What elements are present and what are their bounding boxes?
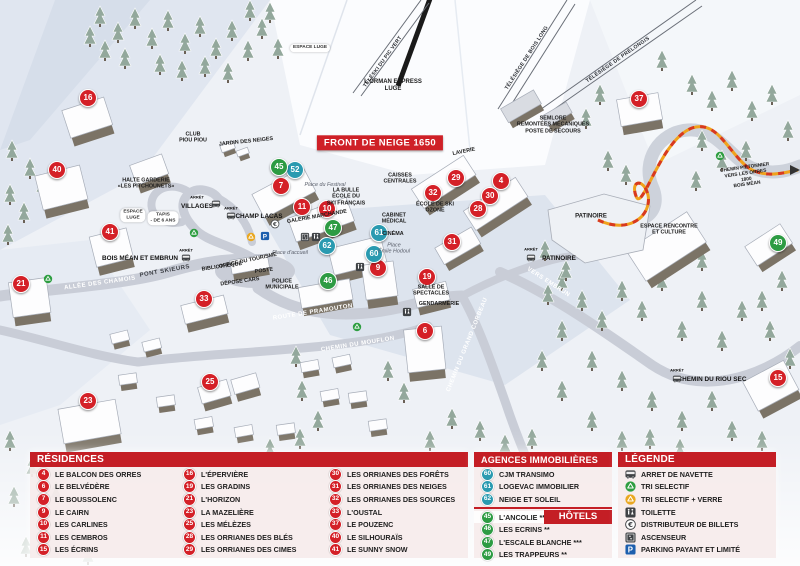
legend-item-label: LES ORRIANES DES BLÉS (201, 533, 293, 542)
legend-item-61: 61LOGEVAC IMMOBILIER (474, 481, 612, 494)
legend-item-11: 11LES CEMBROS (30, 531, 176, 544)
map-marker-41: 41 (101, 223, 119, 241)
map-label: CHEMIN DU MOUFLON (321, 336, 396, 355)
map-key-item: ASCENSEUR (618, 531, 776, 544)
map-label: DÉPOSE CARS (220, 276, 260, 288)
map-label: ESPACE RENCONTRE ET CULTURE (640, 224, 697, 237)
legend-number-badge: 47 (481, 536, 494, 549)
legend-item-label: LE BELVÉDÈRE (55, 482, 110, 491)
legend-item-40: 40LE SILHOURAÏS (322, 531, 468, 544)
map-key-label: PARKING PAYANT ET LIMITÉ (641, 545, 740, 554)
map-label: Place Émile Hodoul (378, 243, 410, 256)
map-key-label: ARRET DE NAVETTE (641, 470, 713, 479)
legend-item-62: 62NEIGE ET SOLEIL (474, 493, 612, 506)
map-key-title: LÉGENDE (625, 454, 675, 465)
map-label: CABINET MÉDICAL (382, 213, 407, 226)
map-label: POSTE (254, 267, 273, 276)
recycle-green-icon (190, 229, 199, 238)
legend-number-badge: 60 (481, 468, 494, 481)
hotels-legend-header: HÔTELS (544, 510, 612, 524)
legend-item-25: 25LES MÉLÈZES (176, 518, 322, 531)
map-key-panel: LÉGENDE ARRET DE NAVETTETRI SELECTIFTRI … (618, 452, 776, 558)
map-marker-33: 33 (195, 290, 213, 308)
legend-item-4: 4LE BALCON DES ORRES (30, 468, 176, 481)
legend-item-label: LES CARLINES (55, 520, 108, 529)
map-label: CINÉMA (382, 231, 403, 237)
map-label: BOIS MÉAN ET EMBRUN (102, 255, 178, 263)
map-marker-23: 23 (79, 392, 97, 410)
legend-item-label: LES GRADINS (201, 482, 250, 491)
legend-item-label: CJM TRANSIMO (499, 470, 555, 479)
map-key-header: LÉGENDE (618, 452, 776, 467)
map-label: GENDARMERIE (419, 301, 459, 307)
map-label: CAISSES CENTRALES (384, 173, 417, 186)
legend-number-badge: 11 (37, 531, 50, 544)
bus-icon (527, 254, 536, 263)
legend-number-badge: 29 (183, 543, 196, 556)
map-key-label: TRI SELECTIF + VERRE (641, 495, 722, 504)
legend-item-label: L'ANCOLIE ** (499, 513, 545, 522)
legend-number-badge: 19 (183, 480, 196, 493)
legend-number-badge: 45 (481, 511, 494, 524)
map-label: CHEMIN PIÉTONNIER VERS LES ORRES 1800 BO… (718, 162, 775, 192)
map-marker-15: 15 (769, 369, 787, 387)
map-label: SALLE DE SPECTACLES (413, 285, 449, 298)
map-label: L'ORMAN EXPRESS LUGE (364, 79, 422, 93)
legend-number-badge: 4 (37, 468, 50, 481)
legend-item-32: 32LES ORRIANES DES SOURCES (322, 493, 468, 506)
legend-item-label: LES ÉCRINS (55, 545, 98, 554)
recycle-green-icon (716, 152, 725, 161)
legend-number-badge: 62 (481, 493, 494, 506)
svg-text:€: € (272, 222, 277, 228)
map-label: TÉLÉSIÈGE DE BOIS LONG (504, 25, 550, 91)
hotels-divider (474, 507, 612, 509)
map-marker-46: 46 (319, 272, 337, 290)
legend-number-badge: 9 (37, 506, 50, 519)
map-marker-11: 11 (293, 198, 311, 216)
legend-number-badge: 7 (37, 493, 50, 506)
map-label: ESPACE LUGE (290, 44, 330, 52)
legend-number-badge: 37 (329, 518, 342, 531)
legend-number-badge: 6 (37, 480, 50, 493)
residences-title: RÉSIDENCES (37, 454, 104, 465)
legend-item-16: 16L'ÉPERVIÈRE (176, 468, 322, 481)
recycle-green-icon (44, 275, 53, 284)
legend-item-label: LE BALCON DES ORRES (55, 470, 141, 479)
map-marker-29: 29 (447, 169, 465, 187)
parking-icon: P (625, 544, 636, 555)
legend-item-28: 28LES ORRIANES DES BLÉS (176, 531, 322, 544)
elevator-icon (625, 532, 636, 543)
map-key-item: PPARKING PAYANT ET LIMITÉ (618, 544, 776, 557)
map-key-list: ARRET DE NAVETTETRI SELECTIFTRI SELECTIF… (618, 467, 776, 556)
recycle-green-icon (625, 481, 636, 492)
resort-map: 1640412133232571110919629432302831371552… (0, 0, 800, 566)
legend-item-label: LE SUNNY SNOW (347, 545, 408, 554)
recycle-yellow-icon (625, 494, 636, 505)
legend-item-label: LE SILHOURAÏS (347, 533, 403, 542)
legend-item-label: LES ORRIANES DES FORÊTS (347, 470, 449, 479)
map-marker-21: 21 (12, 275, 30, 293)
map-marker-16: 16 (79, 89, 97, 107)
map-key-label: TRI SELECTIF (641, 482, 689, 491)
legend-item-label: LES ECRINS ** (499, 525, 550, 534)
recycle-yellow-icon (247, 233, 256, 242)
legend-item-label: LES TRAPPEURS ** (499, 550, 567, 559)
legend-item-label: L'HORIZON (201, 495, 240, 504)
legend-number-badge: 28 (183, 531, 196, 544)
map-label: JARDIN DES NEIGES (219, 136, 274, 148)
legend-item-label: L'ÉPERVIÈRE (201, 470, 248, 479)
legend-item-47: 47L'ESCALE BLANCHE *** (474, 536, 612, 549)
legend-item-10: 10LES CARLINES (30, 518, 176, 531)
map-key-label: DISTRIBUTEUR DE BILLETS (641, 520, 738, 529)
recycle-green-icon (353, 323, 362, 332)
map-marker-37: 37 (630, 90, 648, 108)
map-label: CHEMIN DU RIOU SEC (678, 376, 747, 384)
map-marker-28: 28 (469, 200, 487, 218)
legend-item-23: 23LA MAZELIÈRE (176, 506, 322, 519)
bus-icon (212, 200, 221, 209)
svg-text:P: P (263, 233, 268, 240)
legend-item-37: 37LE POUZENC (322, 518, 468, 531)
euro-icon: € (625, 519, 636, 530)
map-label: ESPACE LUGE (120, 208, 145, 222)
bus-icon (227, 212, 236, 221)
legend-number-badge: 31 (329, 480, 342, 493)
bus-icon (673, 375, 682, 384)
legend-item-6: 6LE BELVÉDÈRE (30, 481, 176, 494)
legend-number-badge: 23 (183, 506, 196, 519)
legend-item-label: LE BOUSSOLENC (55, 495, 117, 504)
agencies-legend-header: AGENCES IMMOBILIÈRES (474, 452, 612, 467)
map-label: ALLÉE DES CHAMOIS (64, 275, 136, 292)
legend-item-label: NEIGE ET SOLEIL (499, 495, 561, 504)
map-marker-62: 62 (318, 237, 336, 255)
legend-number-badge: 41 (329, 543, 342, 556)
legend-number-badge: 40 (329, 531, 342, 544)
map-label: Place d'accueil (272, 250, 308, 256)
map-key-item: ARRET DE NAVETTE (618, 468, 776, 481)
map-key-item: TRI SELECTIF (618, 481, 776, 494)
legend-item-31: 31LES ORRIANES DES NEIGES (322, 481, 468, 494)
map-label: PONT SKIEURS (139, 264, 190, 280)
map-marker-40: 40 (48, 161, 66, 179)
map-label: PATINOIRE (575, 213, 607, 220)
toilet-icon (356, 263, 365, 272)
legend-item-19: 19LES GRADINS (176, 481, 322, 494)
residences-list: 4LE BALCON DES ORRES6LE BELVÉDÈRE7LE BOU… (30, 467, 468, 556)
toilet-icon (625, 507, 636, 518)
map-label: ARRÊT (190, 196, 204, 201)
map-marker-19: 19 (418, 268, 436, 286)
legend-item-29: 29LES ORRIANES DES CIMES (176, 544, 322, 557)
map-label: ARRÊT (670, 369, 684, 374)
residences-legend-header: RÉSIDENCES (30, 452, 468, 467)
legend-number-badge: 49 (481, 548, 494, 561)
map-key-label: ASCENSEUR (641, 533, 686, 542)
legend-item-label: L'ESCALE BLANCHE *** (499, 538, 582, 547)
legend-item-60: 60CJM TRANSIMO (474, 468, 612, 481)
map-key-item: TOILETTE (618, 506, 776, 519)
map-label: HALTE GARDERIE «LES PITCHOUNETS» (118, 178, 175, 191)
map-label: ROUTE DE PRAMOUTON (272, 303, 353, 323)
svg-text:P: P (628, 546, 633, 555)
legend-item-label: LOGEVAC IMMOBILIER (499, 482, 579, 491)
legend-item-21: 21L'HORIZON (176, 493, 322, 506)
map-label: LAVERIE (452, 146, 476, 157)
map-marker-4: 4 (492, 172, 510, 190)
map-label: PATINOIRE (542, 255, 576, 263)
map-label: VERS EMBRUN (525, 266, 571, 299)
legend-item-label: LES CEMBROS (55, 533, 108, 542)
legend-number-badge: 30 (329, 468, 342, 481)
map-label: SEMLORE REMONTÉES MÉCANIQUES POSTE DE SE… (517, 115, 589, 134)
svg-text:€: € (627, 521, 633, 529)
map-label: VILLAGES (181, 203, 213, 211)
front-de-neige-banner: FRONT DE NEIGE 1650 (317, 135, 443, 150)
map-marker-25: 25 (201, 373, 219, 391)
legend-item-label: LES ORRIANES DES NEIGES (347, 482, 447, 491)
euro-icon: € (271, 220, 280, 229)
map-marker-49: 49 (769, 234, 787, 252)
map-marker-31: 31 (443, 233, 461, 251)
legend-item-label: LE POUZENC (347, 520, 393, 529)
legend-item-49: 49LES TRAPPEURS ** (474, 549, 612, 562)
map-label: LA BULLE ÉCOLE DU SKI FRANÇAIS (327, 187, 365, 206)
legend-number-badge: 16 (183, 468, 196, 481)
elevator-icon (301, 233, 310, 242)
agencies-title: AGENCES IMMOBILIÈRES (481, 455, 598, 465)
legend-number-badge: 21 (183, 493, 196, 506)
agencies-list: 60CJM TRANSIMO61LOGEVAC IMMOBILIER62NEIG… (474, 467, 612, 506)
legend-item-label: LES ORRIANES DES CIMES (201, 545, 296, 554)
legend-item-9: 9LE CAIRN (30, 506, 176, 519)
legend-number-badge: 46 (481, 523, 494, 536)
legend-item-label: LA MAZELIÈRE (201, 508, 254, 517)
legend-item-label: L'OUSTAL (347, 508, 382, 517)
map-label: ÉCOLE DE SKI OZONE (416, 202, 454, 215)
map-key-label: TOILETTE (641, 508, 676, 517)
map-marker-6: 6 (416, 322, 434, 340)
bus-icon (625, 469, 636, 480)
legend-number-badge: 61 (481, 480, 494, 493)
hotels-list: HÔTELS 45L'ANCOLIE **46LES ECRINS **47L'… (474, 510, 612, 561)
toilet-icon (312, 233, 321, 242)
map-marker-52: 52 (286, 161, 304, 179)
map-key-item: TRI SELECTIF + VERRE (618, 493, 776, 506)
bus-icon (182, 254, 191, 263)
legend-number-badge: 25 (183, 518, 196, 531)
legend-number-badge: 32 (329, 493, 342, 506)
map-marker-47: 47 (324, 219, 342, 237)
map-label: TÉLÉSIÈGE DE PRÉLONGIS (585, 36, 651, 85)
legend-item-label: LES ORRIANES DES SOURCES (347, 495, 455, 504)
legend-number-badge: 10 (37, 518, 50, 531)
agencies-legend-panel: AGENCES IMMOBILIÈRES 60CJM TRANSIMO61LOG… (474, 452, 612, 558)
parking-icon: P (261, 232, 270, 241)
legend-item-label: LES MÉLÈZES (201, 520, 251, 529)
legend-item-7: 7LE BOUSSOLENC (30, 493, 176, 506)
residences-legend-panel: RÉSIDENCES 4LE BALCON DES ORRES6LE BELVÉ… (30, 452, 468, 558)
toilet-icon (403, 308, 412, 317)
map-marker-7: 7 (272, 177, 290, 195)
legend-item-46: 46LES ECRINS ** (474, 523, 612, 536)
map-marker-45: 45 (270, 158, 288, 176)
legend-item-30: 30LES ORRIANES DES FORÊTS (322, 468, 468, 481)
map-label: POLICE MUNICIPALE (265, 279, 298, 292)
hotels-title: HÔTELS (559, 511, 598, 522)
map-key-item: €DISTRIBUTEUR DE BILLETS (618, 518, 776, 531)
map-label: CHEMIN DU GRAND CORBEAU (446, 297, 491, 393)
legend-item-15: 15LES ÉCRINS (30, 544, 176, 557)
map-label: TAPIS - DE 6 ANS (148, 211, 179, 225)
legend-item-41: 41LE SUNNY SNOW (322, 544, 468, 557)
map-label: BIBLIOTHÈQUE (201, 261, 242, 273)
legend-number-badge: 15 (37, 543, 50, 556)
map-label: ARRÊT (524, 248, 538, 253)
map-label: CLUB PIOU PIOU (179, 132, 207, 145)
legend-item-33: 33L'OUSTAL (322, 506, 468, 519)
legend-item-label: LE CAIRN (55, 508, 89, 517)
map-marker-32: 32 (424, 184, 442, 202)
legend-number-badge: 33 (329, 506, 342, 519)
